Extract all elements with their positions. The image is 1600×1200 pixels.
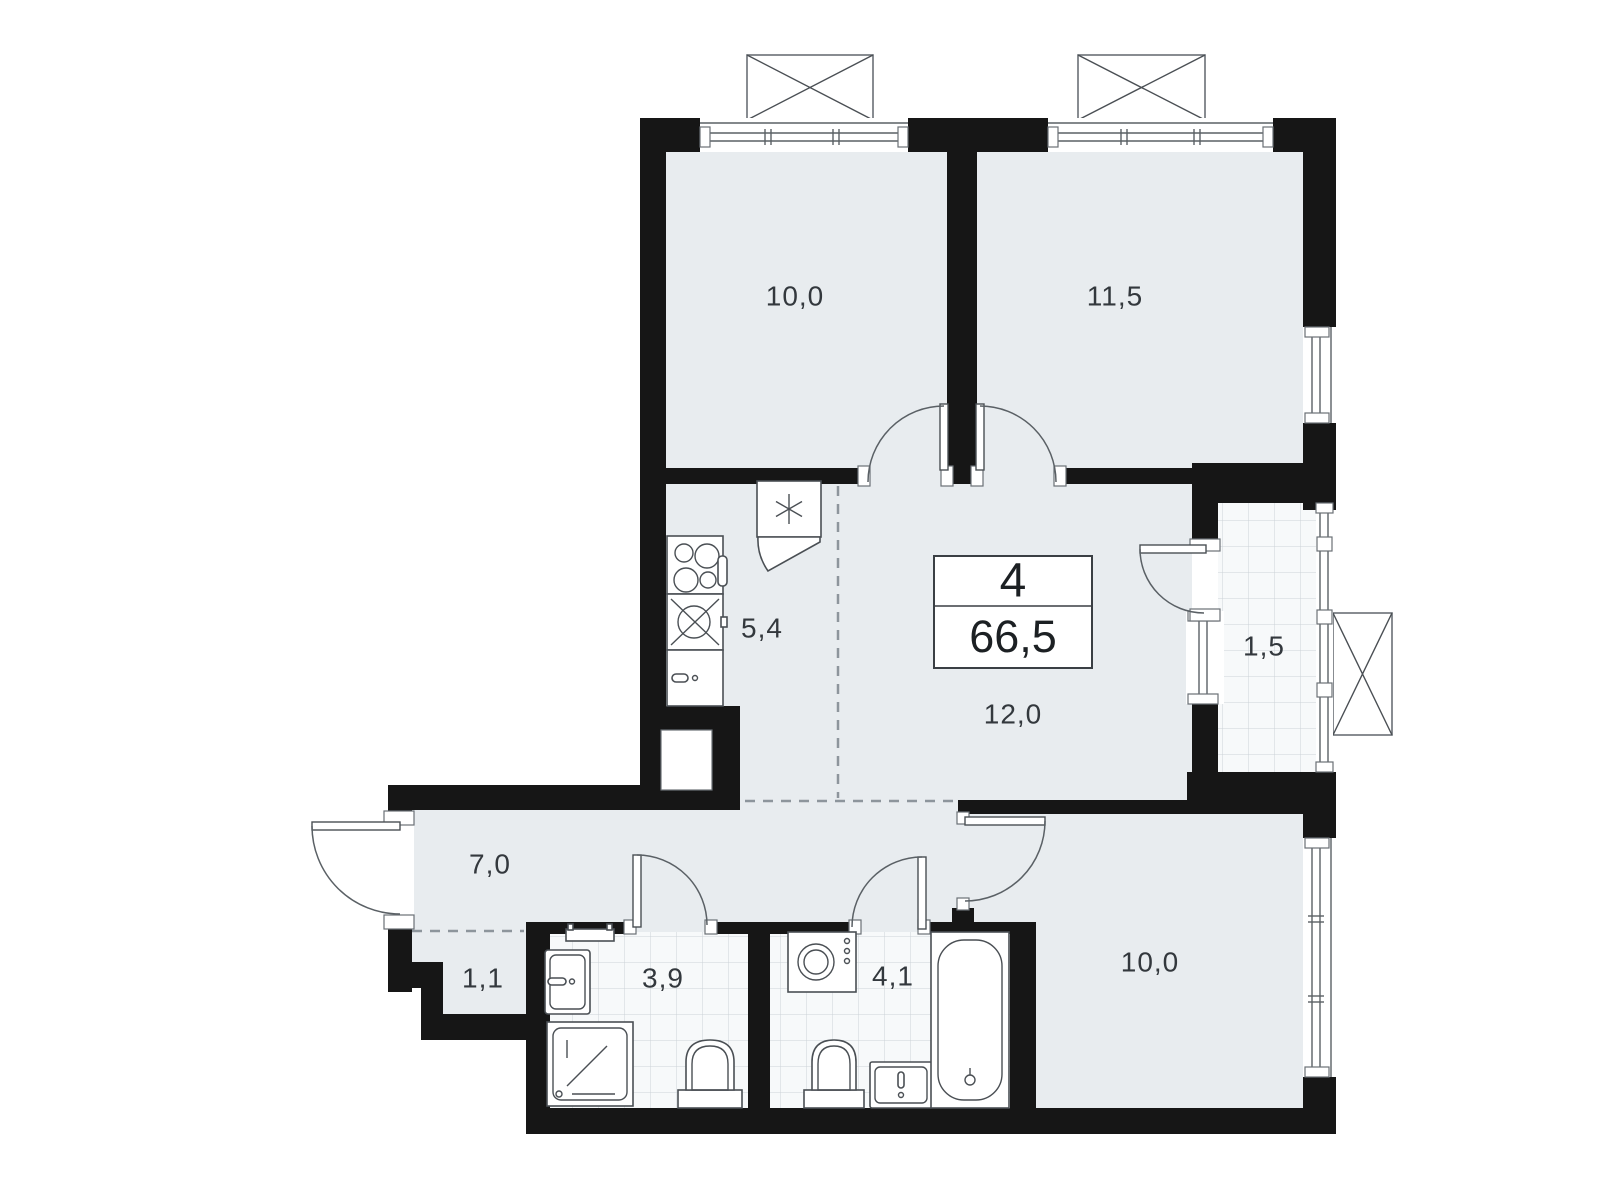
room-label-closet: 1,1	[462, 962, 504, 993]
room-label-bedroom-top-left: 10,0	[766, 280, 825, 311]
window-icon	[700, 118, 908, 152]
washing-machine-icon	[788, 932, 856, 992]
room-label-bathroom-shower: 3,9	[642, 962, 684, 993]
balcony-glazing	[1316, 503, 1333, 772]
bedrooms-floor	[646, 130, 1330, 484]
door-leaf	[976, 404, 984, 470]
vanity-sink-icon	[870, 1062, 932, 1108]
window-icon	[1303, 838, 1336, 1077]
window-icon	[1186, 611, 1224, 704]
window-icon	[1048, 118, 1273, 152]
door-leaf	[965, 817, 1045, 825]
kitchen-cabinet-icon	[667, 650, 723, 706]
duct-niche	[661, 730, 712, 790]
room-label-bathroom-tub: 4,1	[872, 960, 914, 991]
room-label-bedroom-bottom: 10,0	[1121, 946, 1180, 977]
stove-icon	[667, 536, 727, 594]
room-label-bedroom-top-right: 11,5	[1087, 280, 1143, 311]
total-area-value: 66,5	[969, 611, 1057, 662]
room-label-living-room: 12,0	[984, 698, 1043, 729]
room-label-kitchen: 5,4	[741, 612, 783, 643]
door-leaf	[312, 822, 400, 830]
floor-plan: 10,0 11,5 5,4 12,0 1,5 7,0 1,1 3,9 4,1 1…	[0, 0, 1600, 1200]
rooms-count-value: 4	[1000, 555, 1027, 608]
door-leaf	[940, 404, 948, 470]
washbasin-icon	[545, 950, 590, 1014]
floor-plan-page: 10,0 11,5 5,4 12,0 1,5 7,0 1,1 3,9 4,1 1…	[0, 0, 1600, 1200]
window-icon	[1303, 327, 1336, 423]
summary-box: 4 66,5	[934, 555, 1092, 668]
door-leaf	[918, 857, 926, 929]
door-leaf	[633, 855, 641, 927]
room-label-balcony: 1,5	[1243, 630, 1285, 661]
entry-door	[312, 811, 414, 929]
door-leaf	[1140, 545, 1206, 553]
ac-unit-icon	[747, 55, 873, 120]
room-label-hallway: 7,0	[469, 848, 511, 879]
bathtub-icon	[931, 932, 1009, 1108]
ac-unit-icon	[1333, 613, 1392, 735]
toilet-icon	[678, 1040, 742, 1108]
ac-unit-icon	[1078, 55, 1205, 120]
kitchen-sink-icon	[667, 594, 727, 650]
shower-icon	[547, 1022, 633, 1106]
